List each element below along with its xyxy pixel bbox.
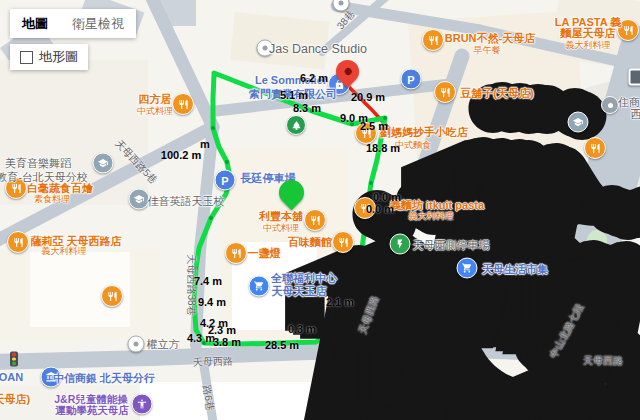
school-poi-icon[interactable]: [129, 189, 150, 210]
restaurant-poi-icon[interactable]: [225, 242, 247, 264]
school-poi-icon[interactable]: [93, 153, 114, 174]
restaurant-poi-icon[interactable]: [101, 285, 123, 307]
restaurant-poi-icon[interactable]: [172, 93, 194, 115]
restaurant-poi-icon[interactable]: [5, 177, 27, 199]
terrain-checkbox[interactable]: [20, 51, 33, 64]
restaurant-poi-icon[interactable]: [617, 19, 639, 41]
traffic-light-icon: [10, 352, 18, 367]
terrain-label: 地形圖: [39, 48, 78, 66]
restaurant-poi-icon[interactable]: [434, 81, 456, 103]
bank-poi-icon[interactable]: [41, 367, 62, 388]
restaurant-poi-icon[interactable]: [355, 122, 377, 144]
generic-poi-icon[interactable]: [257, 40, 274, 57]
restaurant-poi-icon[interactable]: [584, 137, 606, 159]
purple-poi-icon[interactable]: [132, 394, 153, 415]
restaurant-poi-icon[interactable]: [304, 209, 326, 231]
parkP-poi-icon[interactable]: P: [401, 69, 422, 90]
terrain-control[interactable]: 地形圖: [10, 44, 88, 70]
cart-poi-icon[interactable]: [249, 276, 270, 297]
map-button[interactable]: 地圖: [10, 15, 60, 33]
park-poi-icon[interactable]: [286, 115, 306, 135]
restaurant-poi-icon[interactable]: [354, 197, 376, 219]
restaurant-poi-icon[interactable]: [332, 231, 354, 253]
generic-poi-icon[interactable]: [128, 336, 145, 353]
satellite-button[interactable]: 衛星檢視: [60, 15, 136, 33]
parkP-poi-icon[interactable]: P: [215, 170, 236, 191]
restaurant-poi-icon[interactable]: [422, 29, 444, 51]
restaurant-poi-icon[interactable]: [7, 231, 29, 253]
ev-poi-icon[interactable]: [390, 234, 411, 255]
map-canvas[interactable]: PP Jas Dance StudioLe Sommelier索門實業有限公司四…: [0, 0, 640, 420]
genericFilled-poi-icon[interactable]: [601, 96, 619, 114]
map-type-control: 地圖 衛星檢視: [10, 9, 136, 38]
school-poi-icon[interactable]: [568, 112, 589, 133]
cart-poi-icon[interactable]: [457, 258, 478, 279]
transit-icon[interactable]: [629, 69, 640, 86]
